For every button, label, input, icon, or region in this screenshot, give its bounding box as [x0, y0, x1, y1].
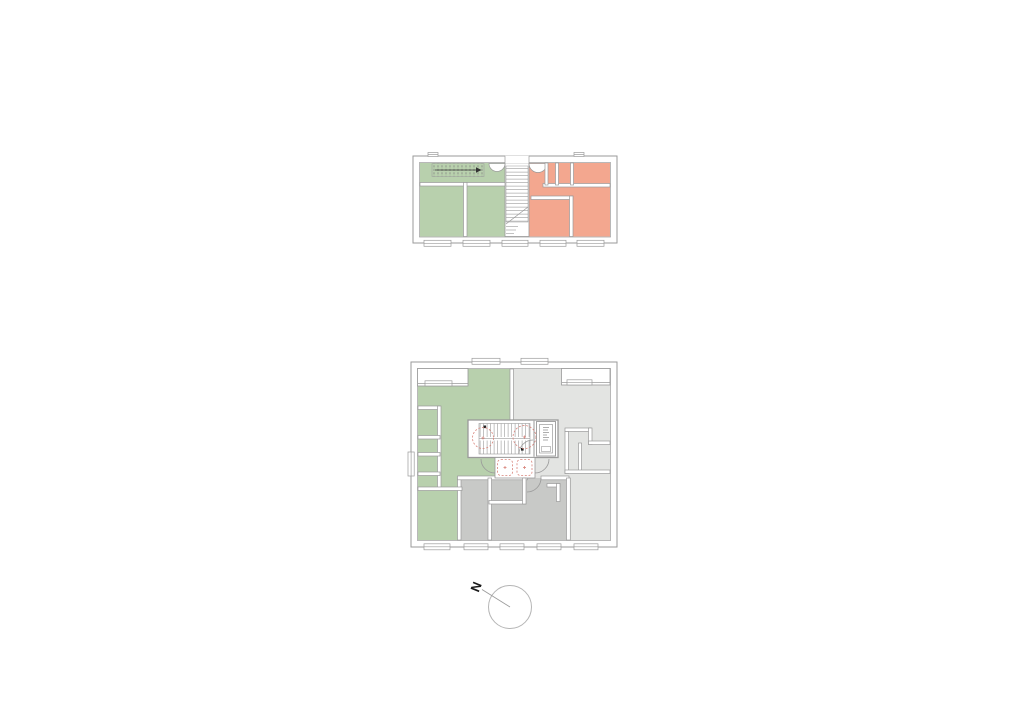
stair-treads — [479, 441, 530, 455]
stair-core — [468, 420, 558, 458]
window-marker — [500, 544, 524, 550]
stair-treads — [506, 166, 528, 222]
wall-segment — [523, 478, 527, 504]
elevator — [537, 422, 556, 457]
wall-segment — [543, 184, 610, 188]
window-marker — [464, 544, 488, 550]
corner-loggia-right — [562, 369, 611, 386]
stair-treads — [479, 424, 530, 438]
window-marker — [577, 240, 604, 246]
window-marker — [463, 240, 490, 246]
window-marker — [537, 544, 561, 550]
wall-segment — [565, 428, 591, 432]
window-marker — [574, 544, 598, 550]
north-compass: N — [467, 580, 531, 629]
wall-segment — [545, 163, 548, 185]
wall-segment — [438, 406, 442, 490]
page: { "page": { "background": "#ffffff" }, "… — [0, 0, 1024, 724]
wall-segment — [571, 163, 574, 185]
attic-stair-hatch — [432, 164, 484, 177]
corner-loggia-left — [418, 369, 469, 387]
wall-segment — [531, 196, 573, 200]
wall-segment — [557, 484, 561, 502]
floor-plans-canvas: N — [0, 0, 1024, 724]
wall-segment — [420, 183, 505, 187]
window-marker — [428, 153, 438, 157]
wall-segment — [556, 163, 559, 185]
wall-segment — [510, 369, 514, 420]
wall-segment — [489, 501, 526, 505]
wall-segment — [570, 196, 574, 237]
wall-segment — [418, 436, 440, 440]
window-marker — [502, 240, 528, 246]
wall-segment — [567, 478, 571, 540]
wall-segment — [464, 183, 468, 237]
wall-segment — [418, 453, 440, 457]
window-marker — [540, 240, 566, 246]
window-marker — [425, 381, 452, 386]
north-label: N — [467, 580, 484, 594]
window-marker — [408, 452, 414, 476]
window-marker — [472, 358, 500, 364]
wall-segment — [589, 441, 611, 445]
wall-segment — [541, 476, 569, 480]
window-marker — [424, 544, 450, 550]
wall-segment — [418, 472, 440, 476]
window-marker — [567, 380, 592, 385]
window-marker — [424, 240, 451, 246]
upper-floor-plan — [413, 153, 617, 247]
wall-segment — [565, 470, 610, 474]
wall-segment — [418, 487, 462, 491]
main-floor-plan — [408, 358, 617, 550]
wall-segment — [579, 443, 582, 472]
wall-opening — [505, 156, 529, 163]
wall-segment — [418, 406, 440, 410]
wall-segment — [488, 478, 492, 540]
window-marker — [521, 358, 548, 364]
wall-segment — [565, 432, 569, 474]
window-marker — [574, 153, 584, 157]
